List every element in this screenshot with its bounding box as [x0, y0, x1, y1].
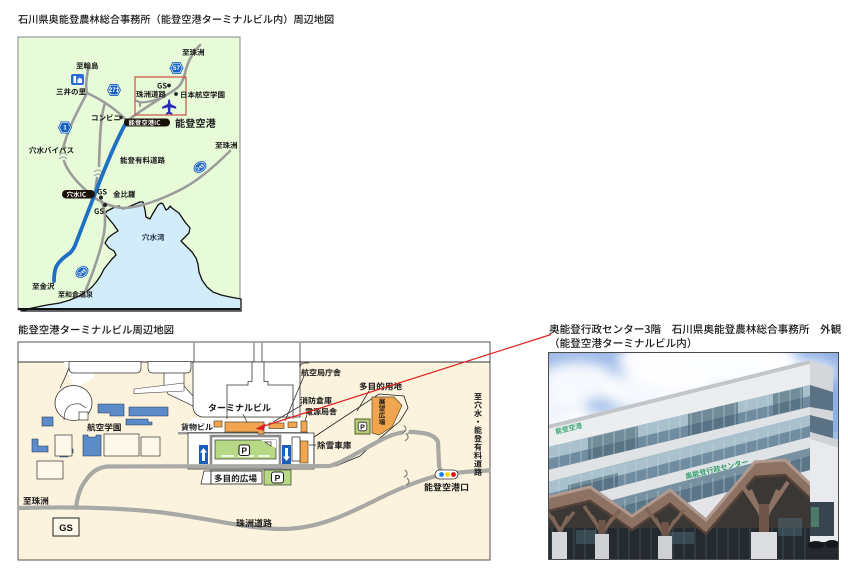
svg-text:P: P [241, 446, 247, 456]
svg-text:57: 57 [173, 65, 180, 72]
svg-text:P: P [275, 473, 281, 483]
svg-text:GS: GS [59, 523, 73, 534]
svg-text:1: 1 [63, 125, 67, 132]
svg-text:P: P [360, 424, 365, 431]
svg-text:271: 271 [109, 87, 120, 94]
